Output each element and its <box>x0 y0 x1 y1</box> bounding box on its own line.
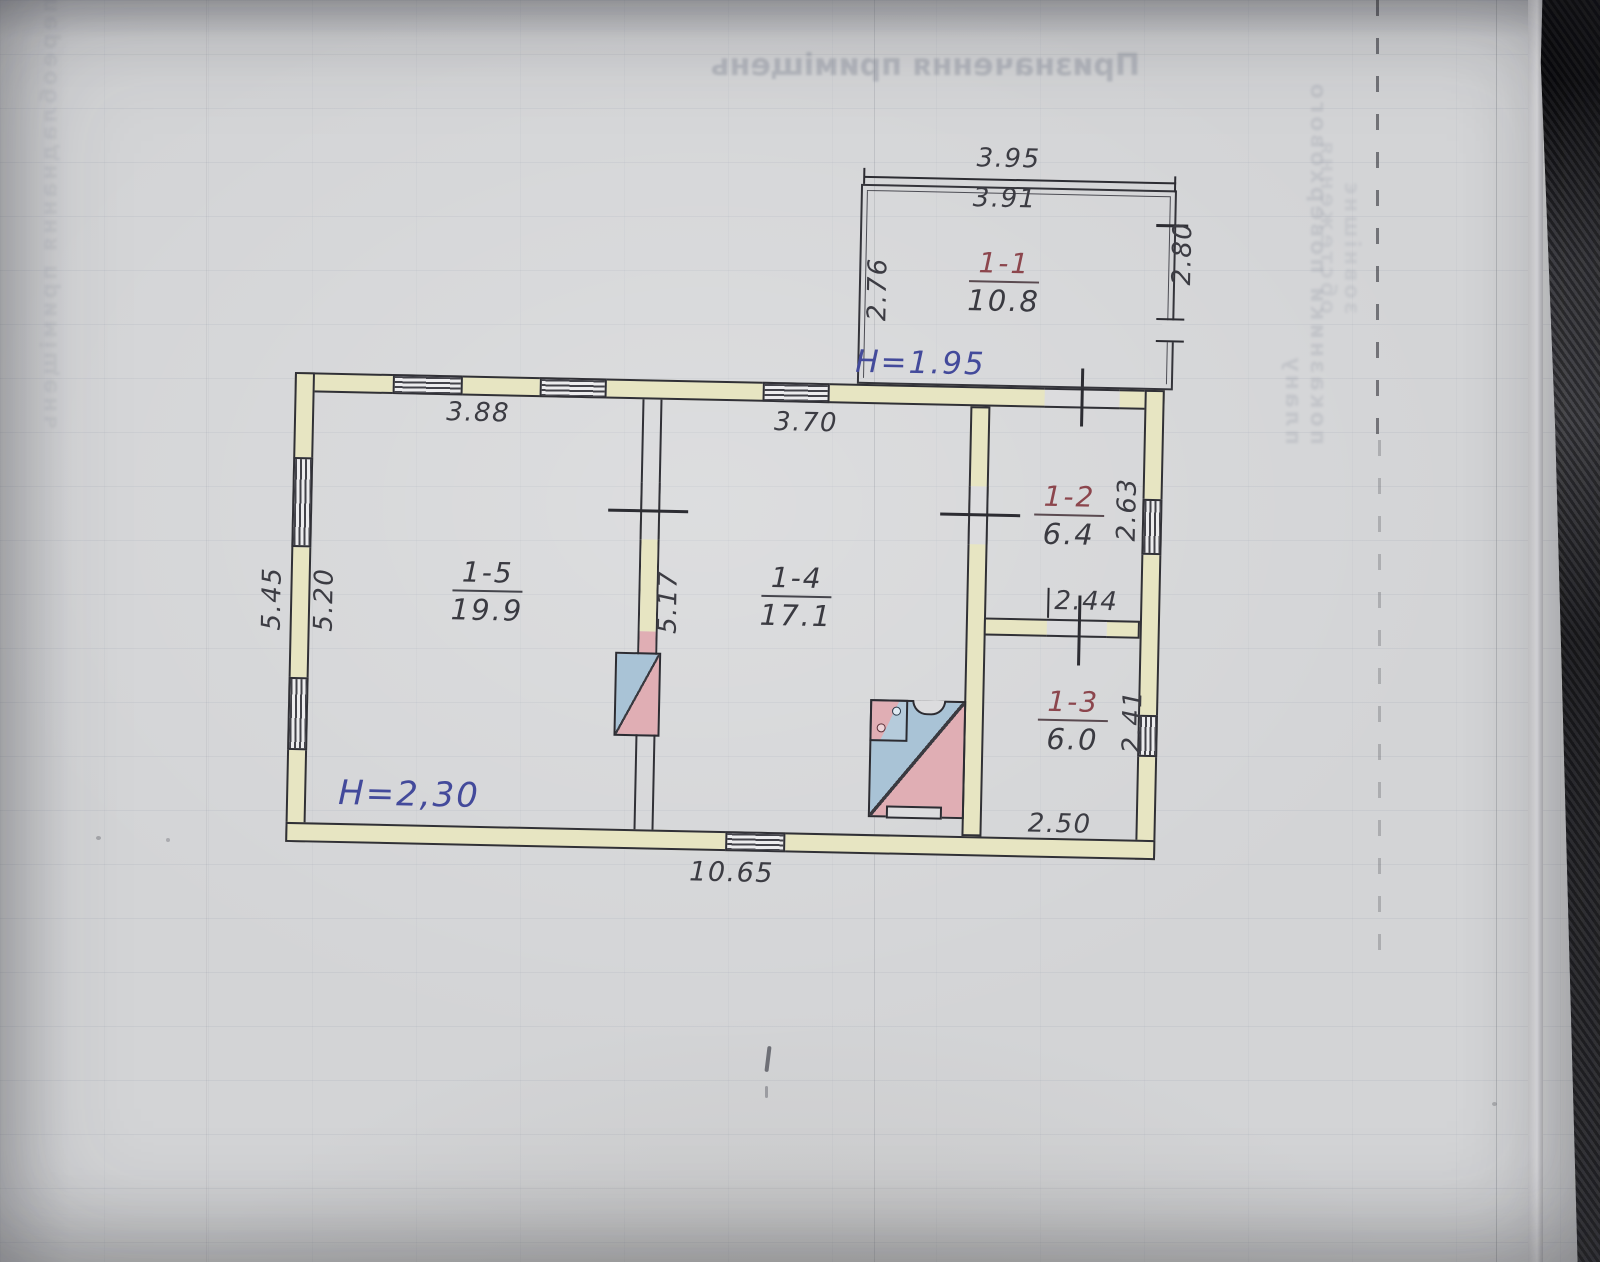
window-right-1 <box>1141 499 1162 555</box>
room-1-4-label: 1-4 17.1 <box>740 560 853 633</box>
window-left-1 <box>291 457 313 547</box>
dim-annex-top-inner: 3.91 <box>954 183 1055 215</box>
burner-icon <box>877 723 886 732</box>
dim-annex-right: 2.80 <box>1167 205 1199 302</box>
height-annex: H=1.95 <box>855 344 986 383</box>
paper-crease <box>206 0 207 1262</box>
fold-line-dashes <box>1376 0 1379 440</box>
bath-inner-box <box>869 699 908 742</box>
room-1-2-area: 6.4 <box>1012 516 1125 552</box>
dim-bottom-total: 10.65 <box>681 856 782 889</box>
room-1-5-number: 1-5 <box>453 555 523 592</box>
window-top-3 <box>762 382 829 403</box>
dim-left-inner: 5.20 <box>308 551 340 648</box>
room-1-1-area: 10.8 <box>947 283 1060 319</box>
room-1-4-area: 17.1 <box>740 597 853 633</box>
dim-top-room14: 3.70 <box>756 407 857 439</box>
paper-right-edge <box>1528 0 1543 1262</box>
room-1-5-area: 19.9 <box>431 592 544 628</box>
annex-dim-line-tick <box>863 168 865 184</box>
window-bottom-1 <box>725 831 785 852</box>
room-1-1-label: 1-1 10.8 <box>947 246 1060 319</box>
second-sheet-edge <box>1496 0 1497 1262</box>
paper-speck <box>166 838 170 842</box>
bath-notch <box>912 700 946 716</box>
dim-annex-left: 2.76 <box>862 241 894 338</box>
room-1-4-number: 1-4 <box>762 561 832 598</box>
dim-top-room15: 3.88 <box>428 397 529 429</box>
dim-wall-15-14: 5.17 <box>652 554 684 651</box>
room-1-1-number: 1-1 <box>969 246 1039 283</box>
paper-speck <box>96 836 101 840</box>
dim-r13-width: 2.50 <box>1009 808 1110 840</box>
annex-window-break <box>1162 320 1180 342</box>
floor-plan: 3.95 3.91 2.76 2.80 3.88 3.70 5.45 5.20 … <box>285 372 1165 860</box>
height-main: H=2,30 <box>338 773 481 816</box>
dim-annex-top-outer: 3.95 <box>958 143 1059 175</box>
annex-dim-line-tick <box>1174 176 1176 192</box>
photographed-floor-plan: Призначення приміщень переобладнання при… <box>0 0 1600 1262</box>
room-1-3-number: 1-3 <box>1038 685 1108 722</box>
ink-mark <box>765 1086 768 1098</box>
dim-r12-width: 2.44 <box>1036 586 1137 618</box>
window-left-2 <box>287 677 309 750</box>
room-1-5-label: 1-5 19.9 <box>431 555 544 628</box>
room-1-2-label: 1-2 6.4 <box>1012 479 1125 552</box>
dim-left-outer: 5.45 <box>256 550 288 647</box>
window-top-1 <box>393 374 463 395</box>
stove-symbol <box>613 652 661 737</box>
bath-stove-symbol <box>868 699 966 819</box>
fold-line-dashes <box>1378 440 1381 960</box>
room-1-3-area: 6.0 <box>1016 721 1129 757</box>
room-1-3-label: 1-3 6.0 <box>1016 684 1129 757</box>
window-top-2 <box>540 377 607 398</box>
burner-icon <box>892 707 901 716</box>
bath-foot-tab <box>886 805 942 819</box>
room-1-2-number: 1-2 <box>1034 480 1104 517</box>
